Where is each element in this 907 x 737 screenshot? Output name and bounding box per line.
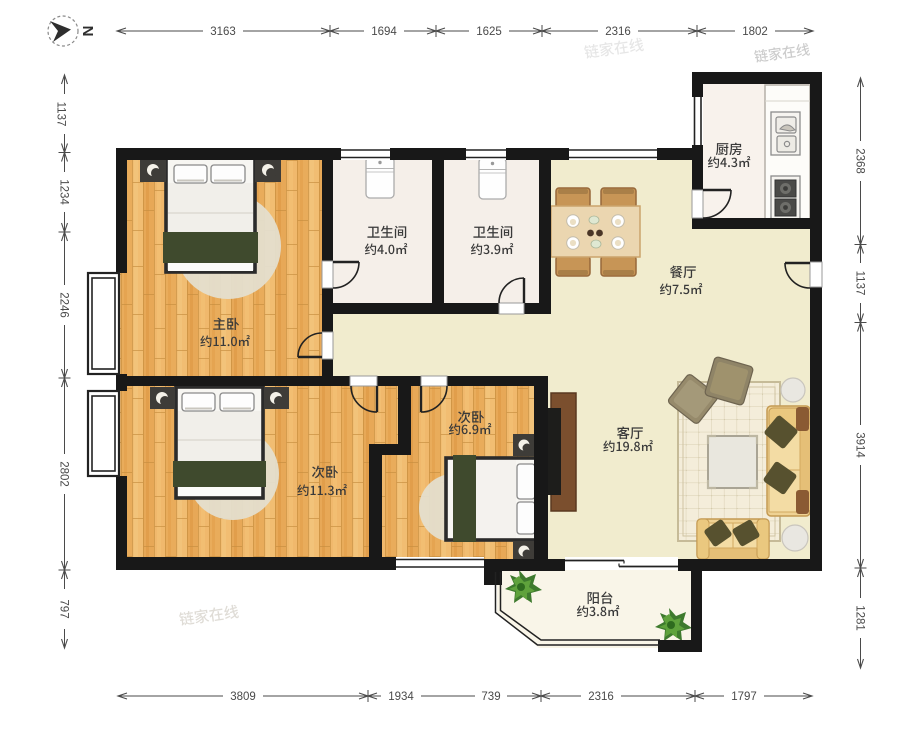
svg-text:1802: 1802 bbox=[742, 26, 768, 38]
svg-text:739: 739 bbox=[481, 691, 500, 703]
svg-text:2316: 2316 bbox=[605, 26, 631, 38]
svg-text:1797: 1797 bbox=[731, 691, 757, 703]
svg-text:2246: 2246 bbox=[57, 292, 69, 318]
svg-text:2316: 2316 bbox=[588, 691, 614, 703]
svg-text:3914: 3914 bbox=[853, 432, 865, 458]
svg-text:1281: 1281 bbox=[853, 605, 865, 631]
svg-text:1694: 1694 bbox=[371, 26, 397, 38]
svg-text:1934: 1934 bbox=[388, 691, 414, 703]
svg-text:3163: 3163 bbox=[210, 26, 236, 38]
svg-text:2368: 2368 bbox=[853, 148, 865, 174]
svg-text:2802: 2802 bbox=[57, 461, 69, 487]
svg-text:1137: 1137 bbox=[853, 271, 865, 296]
svg-text:N: N bbox=[79, 26, 96, 37]
svg-text:1625: 1625 bbox=[476, 26, 502, 38]
svg-text:1137: 1137 bbox=[54, 102, 66, 127]
svg-text:3809: 3809 bbox=[230, 691, 256, 703]
svg-text:1234: 1234 bbox=[57, 179, 69, 205]
svg-text:797: 797 bbox=[57, 599, 69, 618]
